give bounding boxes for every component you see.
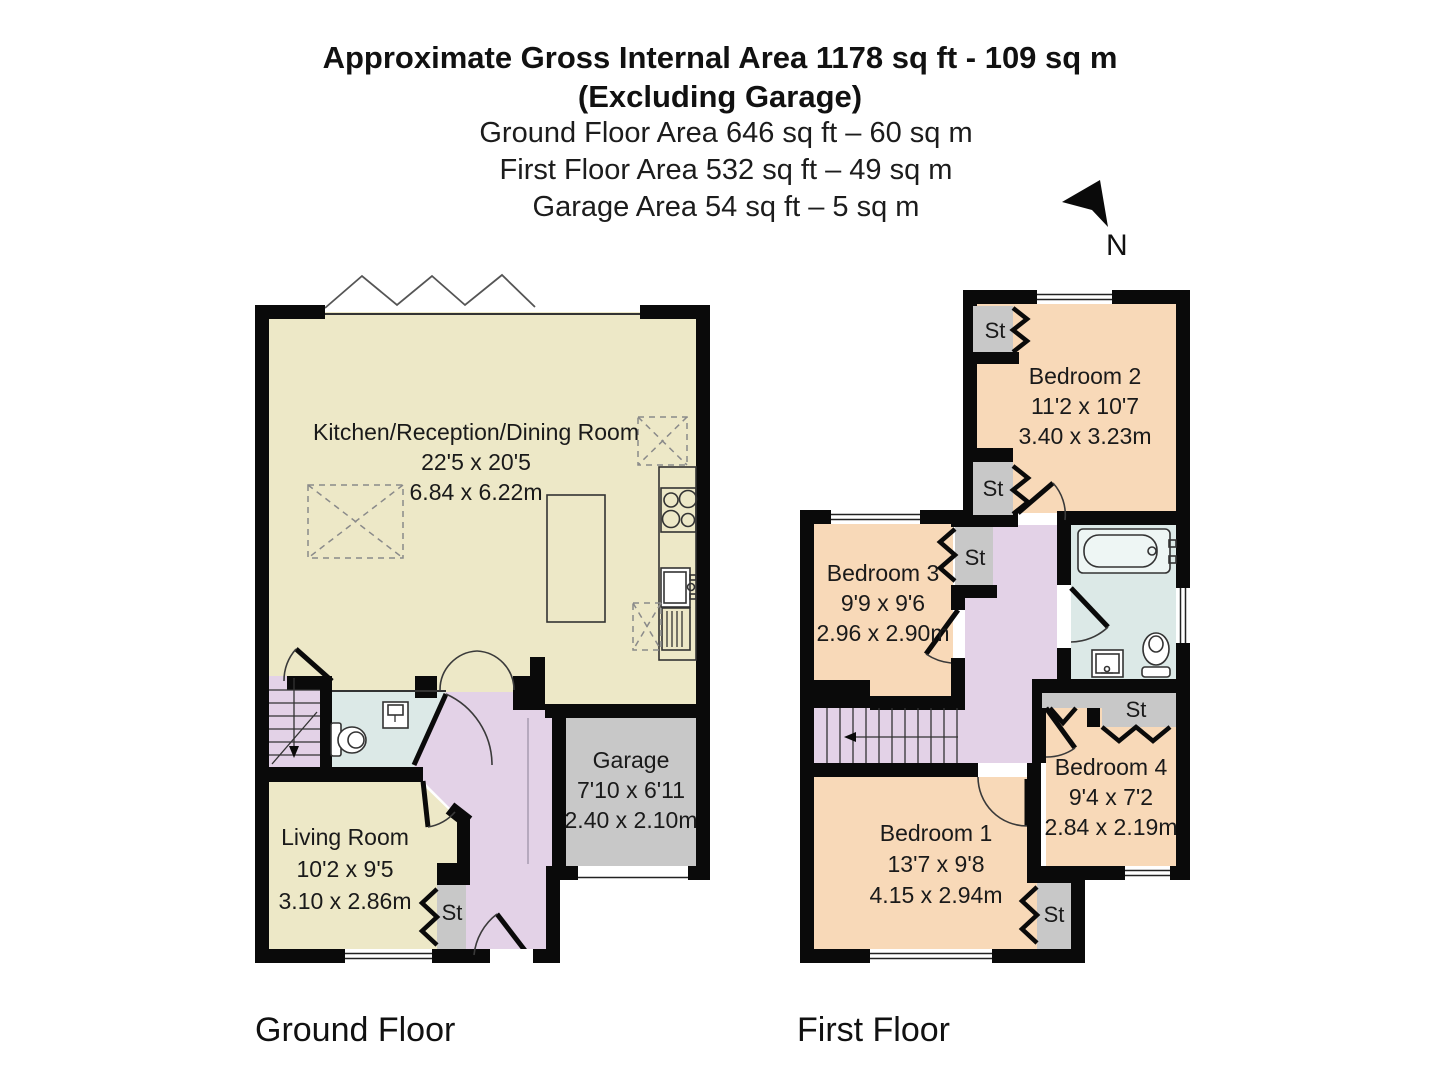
bedroom4-metric: 2.84 x 2.19m [1045,814,1178,840]
bedroom3-name: Bedroom 3 [827,560,940,586]
ground-area-line: Ground Floor Area 646 sq ft – 60 sq m [479,117,972,149]
storage-label: St [985,318,1006,343]
window-bedroom3 [831,510,920,524]
window-living-room [345,949,432,963]
garage-name: Garage [593,747,670,773]
bedroom4-name: Bedroom 4 [1055,754,1168,780]
north-text: N [1106,229,1128,262]
bedroom1-name: Bedroom 1 [880,820,993,846]
storage-label: St [1044,902,1065,927]
first-floor-plan: Bedroom 2 11'2 x 10'7 3.40 x 3.23m Bedro… [797,290,1190,1049]
first-floor-caption: First Floor [797,1011,950,1049]
storage-label: St [965,545,986,570]
bay-window-zigzag [325,275,535,308]
bedroom2-metric: 3.40 x 3.23m [1019,423,1152,449]
storage-label: St [983,476,1004,501]
window-bedroom4 [1125,866,1170,880]
storage-label: St [1126,697,1147,722]
window-bedroom2 [1037,290,1112,304]
living-metric: 3.10 x 2.86m [279,888,412,914]
title-line2: (Excluding Garage) [578,79,862,114]
living-name: Living Room [281,824,409,850]
bedroom1-imperial: 13'7 x 9'8 [887,851,984,877]
north-arrow-icon [1062,180,1108,227]
ground-floor-plan: Kitchen/Reception/Dining Room 22'5 x 20'… [255,275,710,1049]
garage-metric: 2.40 x 2.10m [565,807,698,833]
kitchen-metric: 6.84 x 6.22m [410,479,543,505]
title-line1: Approximate Gross Internal Area 1178 sq … [323,40,1118,75]
kitchen-imperial: 22'5 x 20'5 [421,449,531,475]
storage-label-ground: St [442,900,463,925]
bedroom1-metric: 4.15 x 2.94m [870,882,1003,908]
room-kitchen [269,312,696,704]
kitchen-name: Kitchen/Reception/Dining Room [313,419,639,445]
floorplan-svg: Approximate Gross Internal Area 1178 sq … [0,0,1440,1080]
garage-area-line: Garage Area 54 sq ft – 5 sq m [533,191,920,223]
bedroom4-imperial: 9'4 x 7'2 [1069,784,1153,810]
floorplan-page: Approximate Gross Internal Area 1178 sq … [0,0,1440,1080]
bedroom2-name: Bedroom 2 [1029,363,1142,389]
header: Approximate Gross Internal Area 1178 sq … [323,40,1128,262]
bedroom3-imperial: 9'9 x 9'6 [841,590,925,616]
bedroom3-metric: 2.96 x 2.90m [817,620,950,646]
ground-floor-caption: Ground Floor [255,1011,455,1049]
toilet-icon [1143,633,1169,665]
window-bedroom1 [870,949,992,963]
garage-imperial: 7'10 x 6'11 [577,777,685,803]
garage-door-opening [578,866,688,880]
bedroom2-imperial: 11'2 x 10'7 [1031,393,1139,419]
front-door-opening [490,949,533,963]
first-area-line: First Floor Area 532 sq ft – 49 sq m [500,154,953,186]
living-imperial: 10'2 x 9'5 [296,856,393,882]
window-bathroom [1176,588,1190,643]
